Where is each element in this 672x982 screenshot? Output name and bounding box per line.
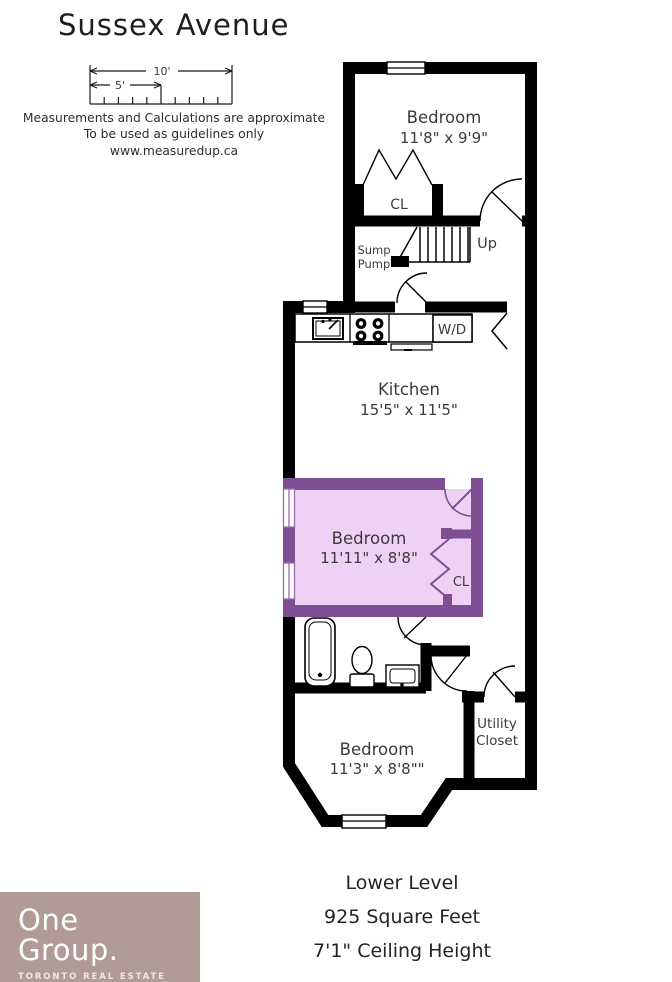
purple-window-1	[284, 489, 295, 527]
closet-top-left-stub	[355, 184, 364, 221]
label-bedroom-bottom: Bedroom	[340, 740, 415, 759]
floor-plan: Bedroom 11'8" x 9'9" CL Sump Pump Up W/D…	[258, 50, 562, 840]
label-sump-2: Pump	[358, 257, 391, 271]
purple-room-floor	[294, 489, 472, 607]
fridge-icon	[391, 344, 432, 350]
logo-block: One Group. TORONTO REAL ESTATE	[0, 892, 200, 982]
label-stairs-up: Up	[477, 236, 497, 252]
scale-label-5ft: 5'	[115, 79, 125, 92]
dims-bedroom-mid: 11'11" x 8'8"	[320, 549, 418, 567]
bathroom-sink-icon	[386, 665, 419, 687]
scale-bar: 10' 5'	[86, 60, 236, 110]
label-utility-2: Closet	[476, 733, 518, 749]
window-kitchen	[303, 301, 327, 313]
footer-level: Lower Level	[240, 866, 564, 900]
purple-window-2	[284, 563, 295, 599]
footer-ceiling: 7'1" Ceiling Height	[240, 934, 564, 968]
window-top-bedroom	[387, 62, 425, 74]
label-sump-1: Sump	[357, 243, 390, 257]
footer-area: 925 Square Feet	[240, 900, 564, 934]
bathtub-icon	[305, 618, 335, 686]
label-bedroom-top: Bedroom	[407, 108, 482, 127]
logo-word-one: One	[18, 905, 200, 935]
kitchen-sink-icon	[313, 318, 343, 339]
label-washer-dryer: W/D	[438, 322, 466, 338]
plan-title: Sussex Avenue	[58, 8, 289, 42]
label-utility-1: Utility	[477, 716, 517, 732]
label-closet-mid: CL	[453, 575, 470, 590]
label-closet-top: CL	[390, 197, 408, 213]
window-bay	[342, 815, 386, 828]
sump-pump-icon	[391, 256, 409, 267]
dims-bedroom-top: 11'8" x 9'9"	[400, 129, 488, 147]
floorplan-page: Sussex Avenue 10' 5' Measurements and Ca…	[0, 0, 672, 982]
label-kitchen: Kitchen	[378, 380, 440, 399]
outer-walls	[289, 68, 531, 821]
logo-word-group: Group.	[18, 935, 200, 965]
label-bedroom-mid: Bedroom	[332, 529, 407, 548]
closet-top-right-stub	[432, 184, 443, 221]
footer-info: Lower Level 925 Square Feet 7'1" Ceiling…	[240, 866, 564, 969]
dims-bedroom-bottom: 11'3" x 8'8""	[329, 760, 424, 778]
toilet-icon	[350, 647, 374, 688]
scale-label-10ft: 10'	[153, 65, 170, 78]
logo-tagline: TORONTO REAL ESTATE	[18, 972, 200, 982]
dims-kitchen: 15'5" x 11'5"	[360, 401, 458, 419]
